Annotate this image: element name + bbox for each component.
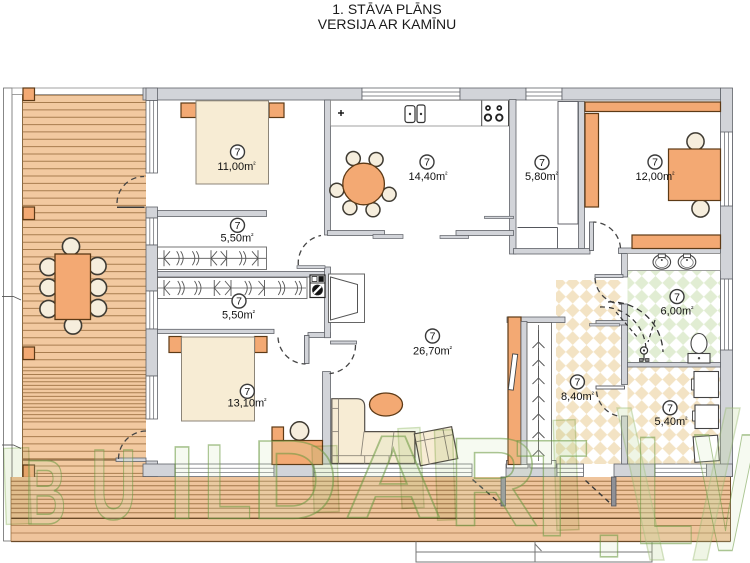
svg-text:7: 7 bbox=[235, 220, 241, 232]
svg-text:12,00m²: 12,00m² bbox=[635, 171, 675, 183]
svg-text:B: B bbox=[25, 442, 66, 544]
svg-text:5,50m²: 5,50m² bbox=[222, 310, 256, 322]
svg-text:7: 7 bbox=[539, 157, 545, 169]
svg-text:L: L bbox=[634, 405, 694, 563]
svg-text:L: L bbox=[203, 422, 252, 542]
svg-text:14,40m²: 14,40m² bbox=[408, 171, 448, 183]
svg-text:11,00m²: 11,00m² bbox=[217, 161, 256, 173]
svg-text:VERSIJA AR KAMĪNU: VERSIJA AR KAMĪNU bbox=[318, 16, 456, 32]
svg-text:7: 7 bbox=[574, 377, 580, 389]
svg-text:V: V bbox=[694, 399, 750, 563]
svg-text:7: 7 bbox=[236, 296, 242, 308]
svg-text:7: 7 bbox=[430, 331, 436, 343]
svg-text:5,50m²: 5,50m² bbox=[221, 233, 255, 245]
svg-text:13,10m²: 13,10m² bbox=[227, 398, 267, 410]
svg-text:T: T bbox=[516, 412, 588, 563]
svg-text:I: I bbox=[169, 424, 195, 541]
svg-text:U: U bbox=[91, 428, 137, 540]
svg-text:D: D bbox=[251, 416, 338, 542]
svg-text:6,00m²: 6,00m² bbox=[661, 305, 695, 317]
svg-text:7: 7 bbox=[652, 157, 658, 169]
svg-text:7: 7 bbox=[244, 386, 250, 398]
svg-text:7: 7 bbox=[235, 147, 241, 159]
svg-text:7: 7 bbox=[424, 157, 430, 169]
svg-text:5,80m²: 5,80m² bbox=[525, 171, 559, 183]
svg-text:.: . bbox=[592, 427, 626, 563]
svg-text:1. STĀVA PLĀNS: 1. STĀVA PLĀNS bbox=[332, 1, 441, 17]
svg-text:26,70m²: 26,70m² bbox=[413, 346, 453, 358]
svg-text:A: A bbox=[344, 411, 443, 543]
svg-text:7: 7 bbox=[674, 291, 680, 303]
svg-text:8,40m²: 8,40m² bbox=[561, 391, 595, 403]
